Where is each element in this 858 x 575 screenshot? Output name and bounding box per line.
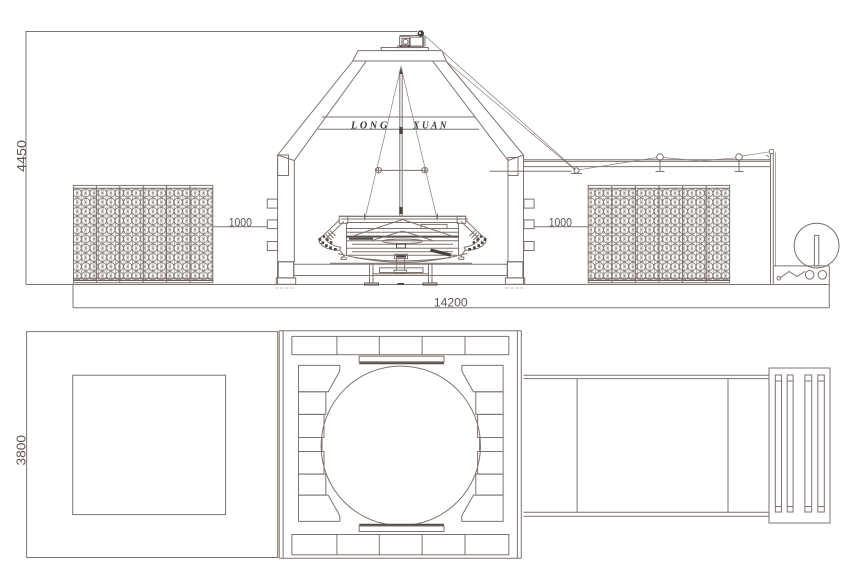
svg-text:3800: 3800 <box>14 435 29 466</box>
svg-text:1000: 1000 <box>229 215 252 229</box>
svg-text:LONG: LONG <box>350 119 390 131</box>
svg-text:4450: 4450 <box>14 140 29 172</box>
svg-text:XUAN: XUAN <box>412 119 448 131</box>
svg-text:14200: 14200 <box>434 296 468 310</box>
svg-text:1000: 1000 <box>549 215 572 229</box>
